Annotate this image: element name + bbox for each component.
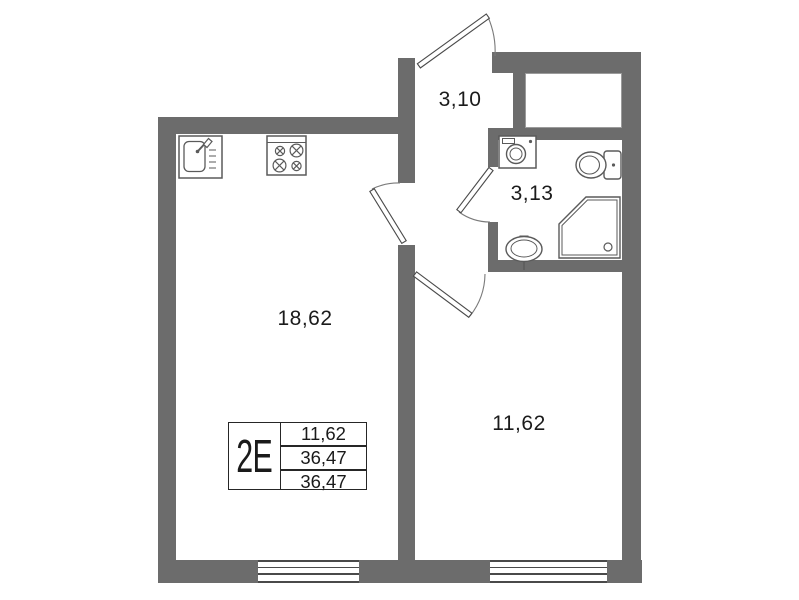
area-value: 36,47 [281,447,366,471]
flat-type-cell: 2E [229,423,281,489]
kitchen-sink-icon [179,136,222,178]
living-room-door [370,183,406,243]
living-kitchen-area-label: 18,62 [259,307,351,331]
entry-door [417,14,495,68]
bedroom-area-label: 11,62 [473,412,565,436]
washing-machine-icon [499,136,536,168]
bedroom-door [413,272,485,317]
plan-symbols-layer [0,0,799,600]
floor-plan: 3,10 3,13 18,62 11,62 2E 11,62 36,47 36,… [0,0,799,600]
wash-basin-icon [506,236,542,270]
shower-icon [559,197,620,258]
area-rows: 11,62 36,47 36,47 [281,423,366,489]
hallway-area-label: 3,10 [414,88,506,112]
flat-type-label: 2E [237,429,273,483]
stove-icon [267,136,306,175]
bathroom-area-label: 3,13 [486,182,578,206]
apartment-info-box: 2E 11,62 36,47 36,47 [228,422,367,490]
toilet-icon [576,151,621,179]
total-area-value: 36,47 [281,471,366,493]
living-area-value: 11,62 [281,423,366,447]
